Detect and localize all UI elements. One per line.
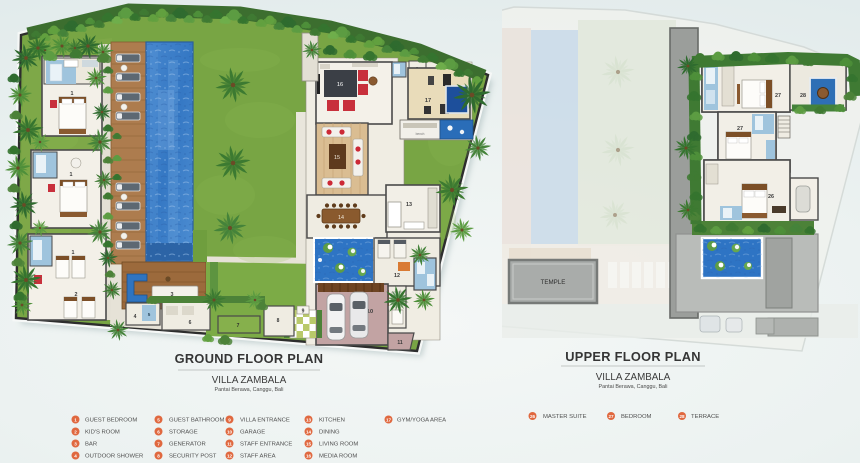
svg-text:Pantai Berawa, Canggu, Bali: Pantai Berawa, Canggu, Bali	[599, 384, 668, 390]
svg-text:5: 5	[148, 312, 151, 317]
svg-text:1: 1	[71, 91, 74, 97]
svg-text:DINING: DINING	[319, 430, 340, 436]
svg-text:17: 17	[386, 417, 392, 422]
svg-text:1: 1	[72, 250, 75, 256]
svg-text:14: 14	[338, 215, 344, 221]
svg-text:16: 16	[337, 82, 343, 88]
svg-text:LIVING ROOM: LIVING ROOM	[319, 442, 358, 448]
svg-text:28: 28	[800, 93, 806, 99]
svg-text:6: 6	[157, 429, 160, 434]
svg-text:26: 26	[530, 414, 536, 419]
svg-text:2: 2	[74, 429, 77, 434]
svg-text:TERRACE: TERRACE	[691, 414, 719, 420]
svg-text:VILLA ENTRANCE: VILLA ENTRANCE	[240, 418, 290, 424]
svg-text:10: 10	[227, 429, 233, 434]
svg-text:1: 1	[70, 172, 73, 178]
svg-text:14: 14	[306, 429, 312, 434]
svg-text:28: 28	[679, 414, 685, 419]
svg-text:11: 11	[227, 441, 232, 446]
svg-text:MEDIA ROOM: MEDIA ROOM	[319, 454, 357, 460]
svg-text:STAFF AREA: STAFF AREA	[240, 454, 276, 460]
svg-text:7: 7	[237, 323, 240, 329]
svg-text:15: 15	[306, 441, 312, 446]
svg-text:1: 1	[74, 417, 77, 422]
svg-text:11: 11	[397, 340, 403, 346]
svg-text:8: 8	[157, 453, 160, 458]
svg-text:6: 6	[189, 320, 192, 326]
svg-text:5: 5	[157, 417, 160, 422]
svg-text:BEDROOM: BEDROOM	[621, 414, 652, 420]
svg-text:KITCHEN: KITCHEN	[319, 418, 345, 424]
svg-text:SECURITY POST: SECURITY POST	[169, 454, 217, 460]
svg-text:GROUND FLOOR PLAN: GROUND FLOOR PLAN	[175, 351, 324, 366]
svg-text:26: 26	[768, 194, 774, 200]
svg-text:STORAGE: STORAGE	[169, 430, 198, 436]
svg-text:UPPER FLOOR PLAN: UPPER FLOOR PLAN	[565, 349, 701, 364]
svg-text:VILLA ZAMBALA: VILLA ZAMBALA	[596, 372, 671, 383]
svg-text:3: 3	[74, 441, 77, 446]
svg-text:13: 13	[406, 202, 412, 208]
svg-text:27: 27	[608, 414, 614, 419]
svg-text:GUEST BEDROOM: GUEST BEDROOM	[85, 418, 137, 424]
svg-text:BAR: BAR	[85, 442, 97, 448]
svg-text:27: 27	[737, 126, 743, 132]
svg-text:13: 13	[306, 417, 312, 422]
svg-text:7: 7	[157, 441, 160, 446]
svg-text:bench: bench	[416, 132, 425, 136]
svg-text:VILLA ZAMBALA: VILLA ZAMBALA	[212, 375, 287, 386]
svg-text:8: 8	[277, 318, 280, 324]
svg-text:9: 9	[302, 309, 305, 315]
svg-text:GUEST BATHROOM: GUEST BATHROOM	[169, 418, 225, 424]
svg-text:15: 15	[334, 155, 340, 161]
svg-text:27: 27	[775, 93, 781, 99]
svg-text:4: 4	[134, 314, 137, 320]
svg-text:STAFF ENTRANCE: STAFF ENTRANCE	[240, 442, 292, 448]
svg-text:16: 16	[306, 453, 312, 458]
svg-text:Pantai Berawa, Canggu, Bali: Pantai Berawa, Canggu, Bali	[215, 387, 284, 393]
svg-text:9: 9	[228, 417, 231, 422]
svg-text:GYM/YOGA AREA: GYM/YOGA AREA	[397, 418, 446, 424]
svg-text:17: 17	[425, 98, 431, 104]
svg-text:12: 12	[227, 453, 233, 458]
svg-text:MASTER SUITE: MASTER SUITE	[543, 414, 587, 420]
svg-text:KID'S ROOM: KID'S ROOM	[85, 430, 120, 436]
svg-text:TEMPLE: TEMPLE	[541, 279, 566, 286]
svg-text:4: 4	[74, 453, 77, 458]
svg-text:GENERATOR: GENERATOR	[169, 442, 206, 448]
svg-text:GARAGE: GARAGE	[240, 430, 265, 436]
svg-text:OUTDOOR SHOWER: OUTDOOR SHOWER	[85, 454, 143, 460]
svg-text:12: 12	[394, 273, 400, 279]
